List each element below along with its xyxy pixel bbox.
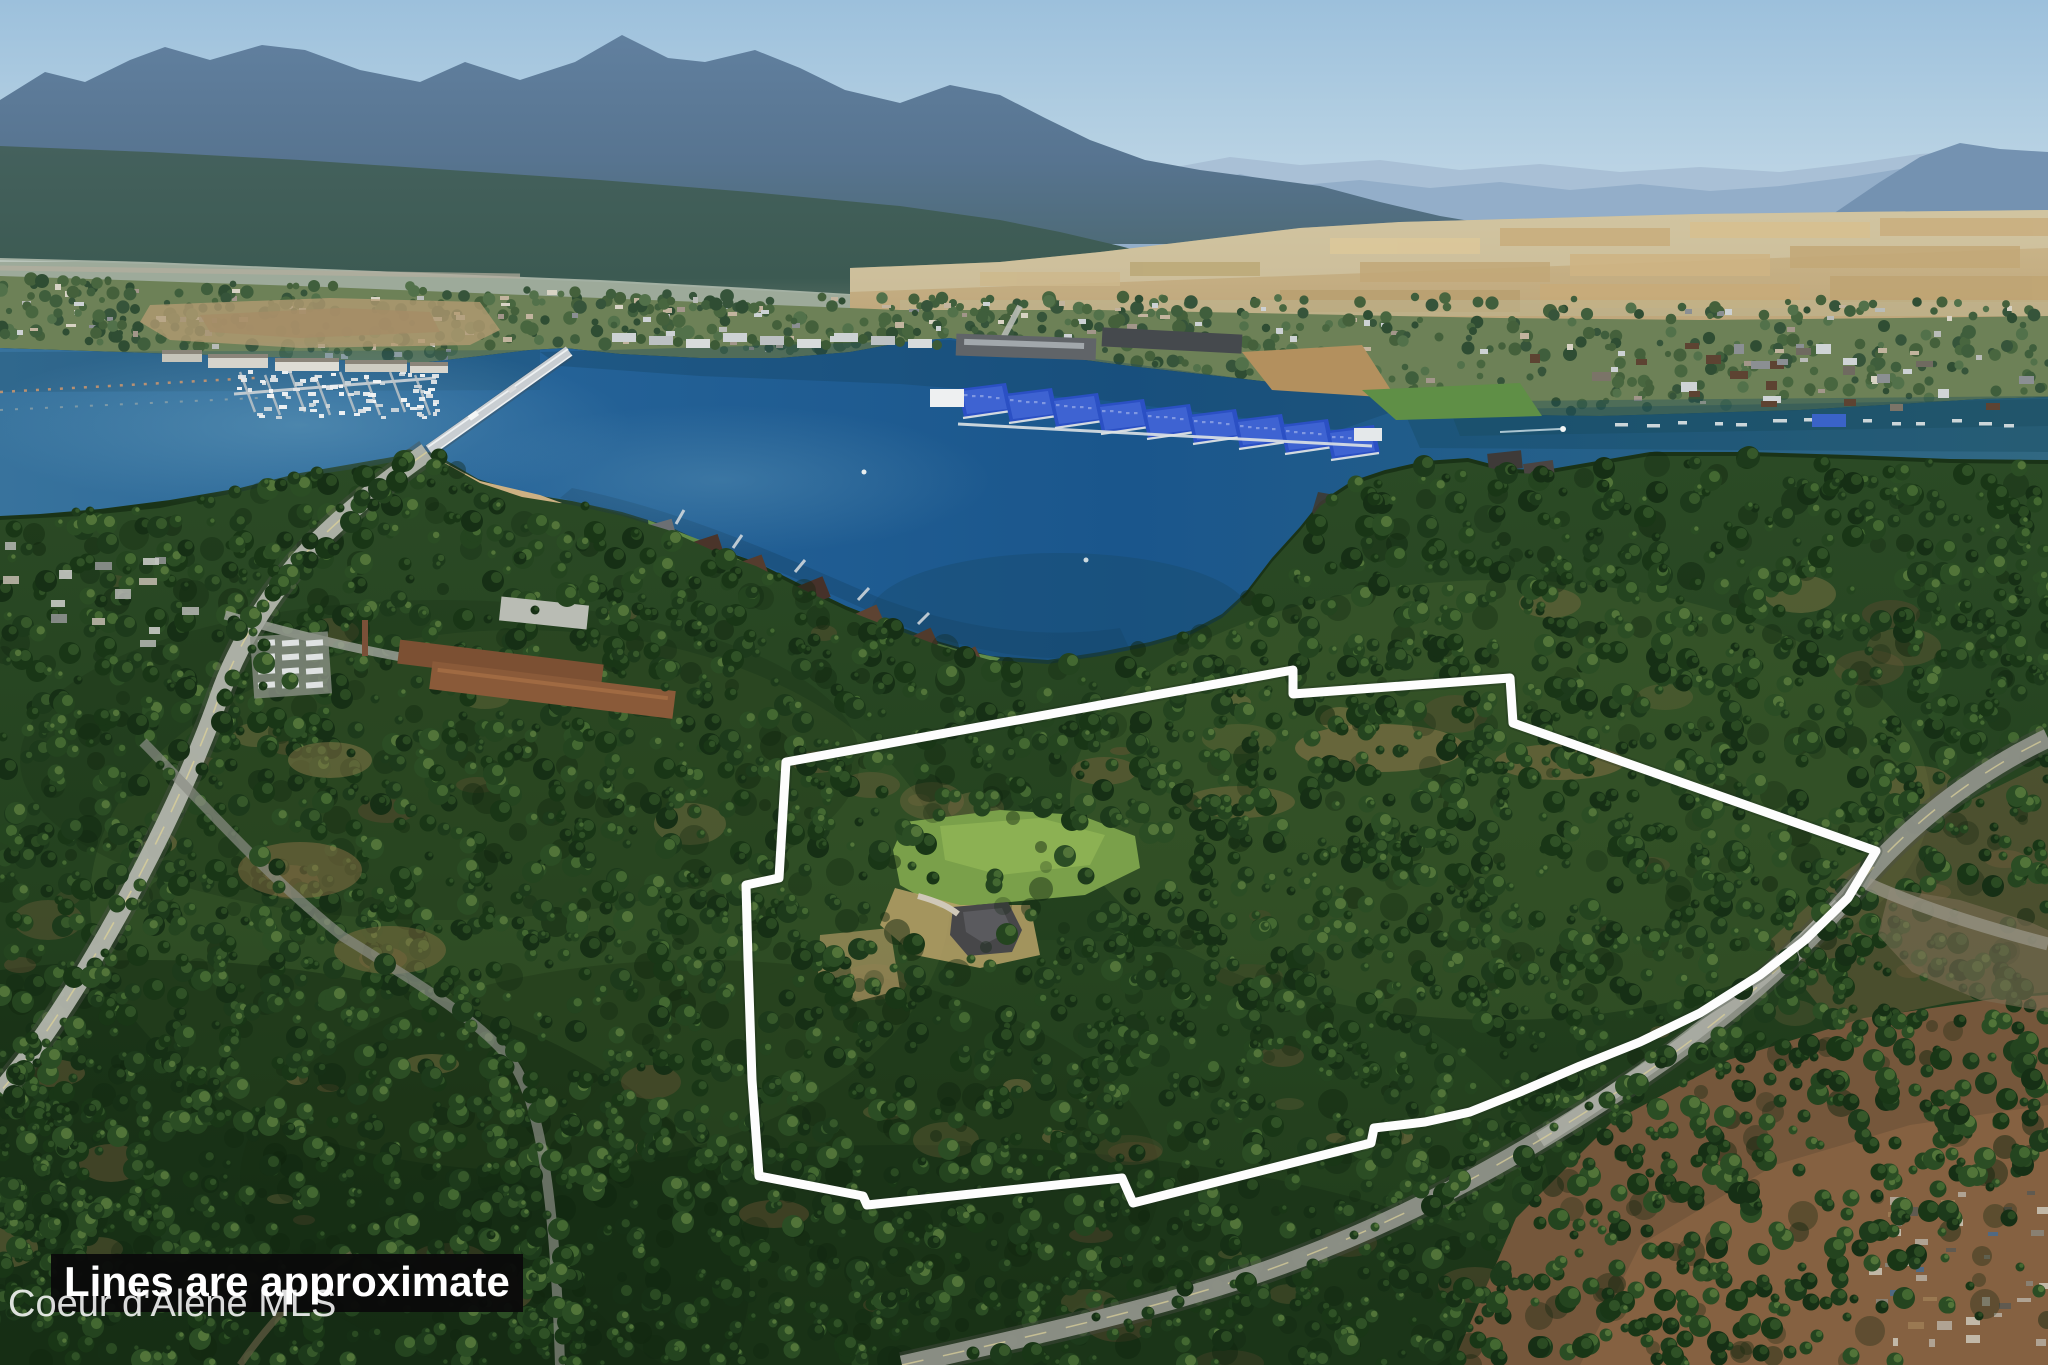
svg-text:Coeur d'Alene MLS: Coeur d'Alene MLS [8, 1283, 336, 1325]
